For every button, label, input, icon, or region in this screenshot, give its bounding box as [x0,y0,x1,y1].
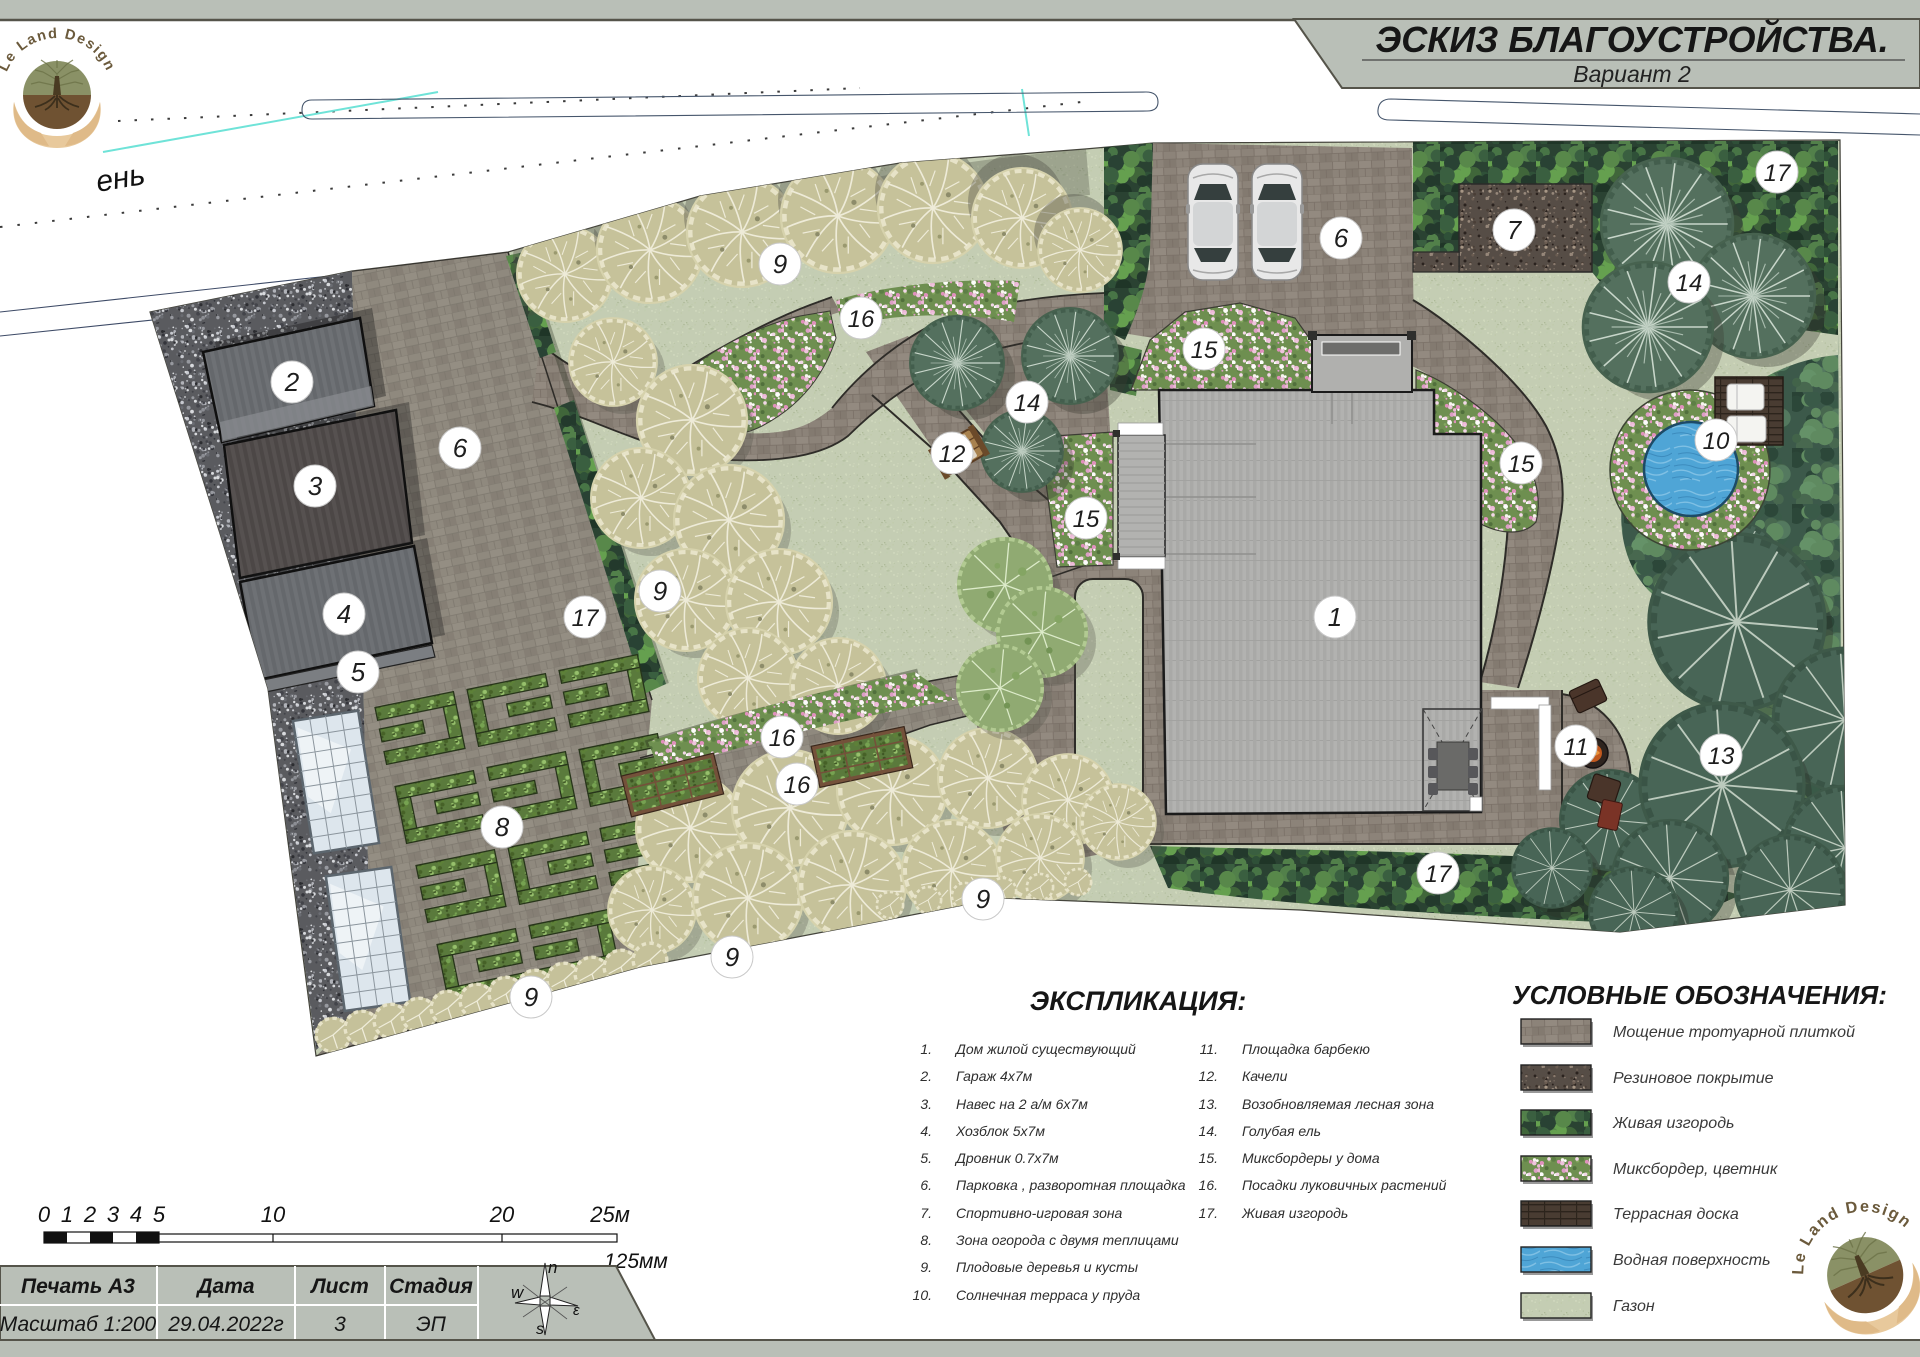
svg-text:16: 16 [769,725,796,752]
svg-text:5: 5 [153,1202,166,1227]
svg-text:Возобновляемая лесная зона: Возобновляемая лесная зона [1242,1096,1434,1112]
svg-text:Дата: Дата [195,1275,255,1298]
svg-text:Парковка , разворотная площадк: Парковка , разворотная площадка [956,1177,1186,1193]
svg-text:Спортивно-игровая зона: Спортивно-игровая зона [956,1205,1123,1221]
svg-text:1.: 1. [920,1041,932,1057]
svg-text:Солнечная терраса у пруда: Солнечная терраса у пруда [956,1287,1140,1303]
svg-text:17.: 17. [1199,1205,1218,1221]
svg-text:Зона огорода с двумя теплицами: Зона огорода с двумя теплицами [956,1232,1179,1248]
svg-text:14: 14 [1014,390,1041,417]
svg-text:Плодовые деревья и кусты: Плодовые деревья и кусты [956,1259,1139,1275]
svg-text:6.: 6. [920,1177,932,1193]
svg-text:14.: 14. [1199,1123,1218,1139]
svg-text:Водная поверхность: Водная поверхность [1613,1252,1771,1269]
svg-text:Хозблок 5х7м: Хозблок 5х7м [955,1123,1045,1139]
svg-text:1: 1 [1328,602,1342,632]
svg-text:1: 1 [61,1202,73,1227]
svg-text:ень: ень [93,158,147,199]
svg-text:2: 2 [284,367,300,397]
svg-text:6: 6 [1334,223,1349,253]
svg-text:15: 15 [1508,451,1535,478]
svg-text:25м: 25м [589,1202,630,1227]
svg-text:9: 9 [653,576,667,606]
svg-text:0: 0 [38,1202,51,1227]
svg-text:5: 5 [351,657,366,687]
svg-text:Террасная доска: Террасная доска [1613,1206,1739,1223]
svg-text:8: 8 [495,812,510,842]
svg-text:6: 6 [453,433,468,463]
svg-text:Масштаб 1:200: Масштаб 1:200 [0,1313,157,1336]
svg-text:5.: 5. [920,1150,932,1166]
svg-text:Миксбордеры у дома: Миксбордеры у дома [1242,1150,1380,1166]
svg-text:Вариант 2: Вариант 2 [1573,61,1691,87]
svg-text:УСЛОВНЫЕ ОБОЗНАЧЕНИЯ:: УСЛОВНЫЕ ОБОЗНАЧЕНИЯ: [1512,980,1887,1010]
svg-text:Живая изгородь: Живая изгородь [1612,1115,1734,1132]
svg-text:s: s [536,1321,544,1338]
svg-text:3.: 3. [920,1096,932,1112]
svg-text:13.: 13. [1199,1096,1218,1112]
svg-text:16: 16 [848,306,875,333]
svg-text:Лист: Лист [309,1275,369,1298]
svg-text:15.: 15. [1199,1150,1218,1166]
svg-text:10.: 10. [913,1287,932,1303]
svg-text:11: 11 [1564,734,1589,761]
svg-text:20: 20 [489,1202,515,1227]
svg-text:14: 14 [1676,270,1703,297]
svg-text:Газон: Газон [1613,1298,1655,1315]
svg-text:2: 2 [83,1202,96,1227]
svg-text:3: 3 [107,1202,120,1227]
svg-text:Посадки луковичных растений: Посадки луковичных растений [1242,1177,1447,1193]
svg-text:Миксбордер, цветник: Миксбордер, цветник [1613,1161,1779,1178]
svg-text:ɛ: ɛ [573,1302,580,1319]
svg-text:Навес на 2 а/м 6х7м: Навес на 2 а/м 6х7м [956,1096,1088,1112]
svg-text:10: 10 [1703,428,1730,455]
svg-text:ЭКСПЛИКАЦИЯ:: ЭКСПЛИКАЦИЯ: [1030,986,1246,1016]
svg-text:16.: 16. [1199,1177,1218,1193]
svg-text:Качели: Качели [1242,1068,1288,1084]
svg-text:29.04.2022г: 29.04.2022г [167,1313,283,1336]
svg-text:16: 16 [784,772,811,799]
svg-text:12: 12 [939,441,966,468]
svg-text:Мощение тротуарной плиткой: Мощение тротуарной плиткой [1613,1024,1855,1041]
svg-text:7.: 7. [920,1205,932,1221]
svg-text:Дом жилой существующий: Дом жилой существующий [954,1041,1136,1057]
svg-text:Печать А3: Печать А3 [21,1275,135,1298]
svg-text:4: 4 [130,1202,142,1227]
svg-text:17: 17 [1425,861,1453,888]
svg-text:Живая изгородь: Живая изгородь [1241,1205,1348,1221]
svg-text:17: 17 [572,605,600,632]
svg-text:10: 10 [261,1202,286,1227]
svg-text:Площадка барбекю: Площадка барбекю [1242,1041,1370,1057]
svg-text:15: 15 [1191,337,1218,364]
svg-text:9.: 9. [920,1259,932,1275]
svg-text:11.: 11. [1200,1041,1218,1057]
svg-text:9: 9 [976,884,990,914]
svg-text:12.: 12. [1199,1068,1218,1084]
svg-text:3: 3 [308,471,323,501]
svg-text:ЭП: ЭП [416,1313,447,1336]
svg-text:n: n [548,1258,557,1277]
svg-text:Стадия: Стадия [389,1275,473,1298]
svg-text:2.: 2. [919,1068,932,1084]
svg-text:ЭСКИЗ БЛАГОУСТРОЙСТВА.: ЭСКИЗ БЛАГОУСТРОЙСТВА. [1375,18,1888,60]
svg-text:9: 9 [725,942,739,972]
svg-text:17: 17 [1764,160,1792,187]
svg-text:Гараж 4х7м: Гараж 4х7м [956,1068,1033,1084]
svg-text:4.: 4. [920,1123,932,1139]
svg-text:9: 9 [524,982,538,1012]
svg-text:13: 13 [1708,743,1735,770]
svg-text:Дровник 0.7х7м: Дровник 0.7х7м [954,1150,1059,1166]
svg-text:9: 9 [773,249,787,279]
svg-text:w: w [511,1283,525,1302]
svg-text:Резиновое покрытие: Резиновое покрытие [1613,1070,1774,1087]
svg-text:3: 3 [334,1313,346,1336]
svg-text:4: 4 [337,599,351,629]
svg-text:Голубая ель: Голубая ель [1242,1123,1321,1139]
svg-text:8.: 8. [920,1232,932,1248]
svg-text:7: 7 [1507,215,1523,245]
svg-text:15: 15 [1073,506,1100,533]
